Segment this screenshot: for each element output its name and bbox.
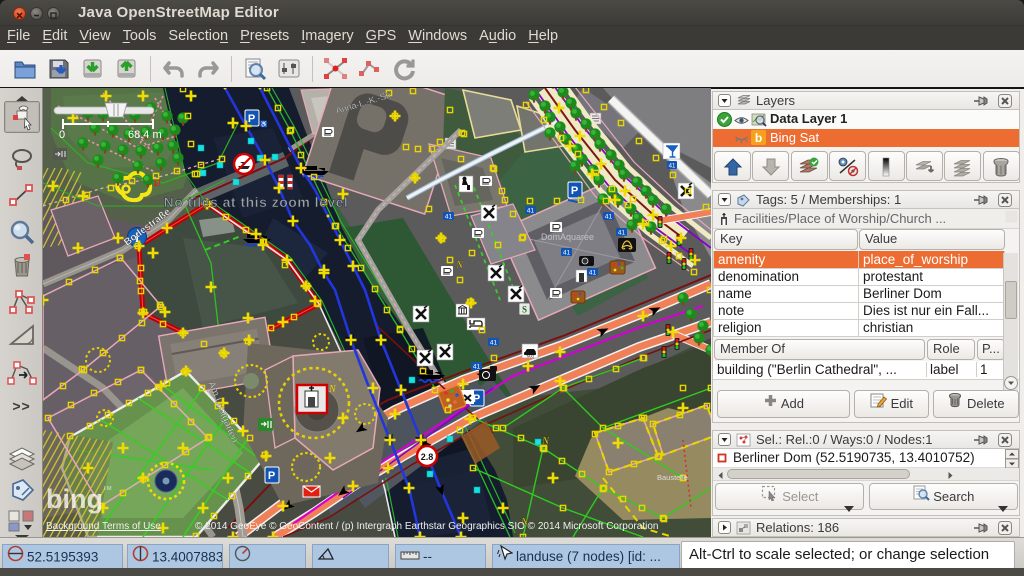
svg-text:41: 41	[618, 230, 626, 237]
svg-text:S: S	[522, 305, 527, 315]
svg-text:41: 41	[473, 364, 481, 371]
svg-text:41: 41	[563, 250, 571, 257]
svg-text:TAXI: TAXI	[526, 355, 534, 359]
svg-text:N: N	[455, 260, 464, 271]
svg-text:♿: ♿	[260, 120, 268, 128]
svg-text:© 2014 GeoEye © GeoContent / (: © 2014 GeoEye © GeoContent / (p) Intergr…	[195, 521, 658, 532]
svg-text:41: 41	[490, 340, 498, 347]
svg-text:68.4 m: 68.4 m	[128, 129, 162, 141]
svg-text:41: 41	[445, 214, 453, 221]
svg-text:2.8: 2.8	[421, 452, 434, 462]
svg-text:b: b	[755, 131, 762, 145]
svg-text:Baustelle: Baustelle	[657, 473, 688, 482]
svg-text:N: N	[328, 384, 337, 395]
svg-text:41: 41	[669, 164, 676, 170]
svg-text:DomAquaree: DomAquaree	[541, 232, 594, 242]
svg-text:41: 41	[527, 208, 535, 215]
svg-text:41: 41	[605, 214, 613, 221]
svg-text:TM: TM	[103, 486, 112, 492]
svg-text:N: N	[541, 436, 550, 447]
svg-text:0: 0	[59, 129, 65, 141]
svg-text:41: 41	[589, 270, 597, 277]
svg-text:1!: 1!	[153, 178, 161, 188]
svg-text:No tiles at this zoom level: No tiles at this zoom level	[164, 194, 349, 210]
svg-text:bing: bing	[46, 484, 103, 514]
svg-text:Background Terms of Use: Background Terms of Use	[46, 521, 161, 532]
